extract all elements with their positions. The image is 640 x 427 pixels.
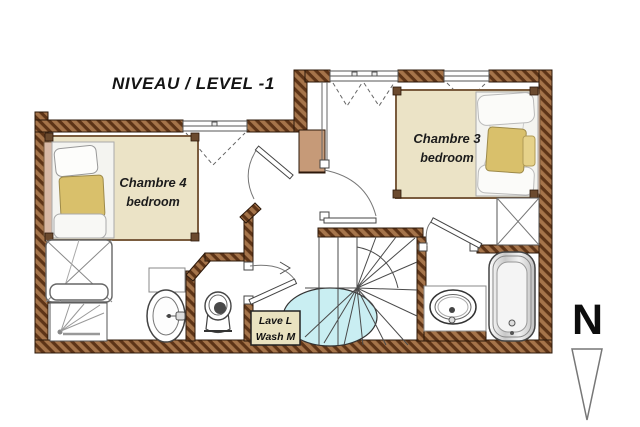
sofa-bunk-chambre4 [46,240,112,302]
vanity-right [424,286,486,331]
floor-plan-level-minus-1: NIVEAU / LEVEL -1 Chambre 4 bedroom Cham… [0,0,640,427]
laundry-label: Lave L Wash M [252,313,299,346]
tub-drain [509,320,515,326]
laundry-label-line1: Lave L [252,313,299,329]
washbasin-left [147,268,185,342]
north-arrow-icon [572,349,602,420]
wall-vanity-base [424,330,486,341]
closet-chambre3 [497,198,539,245]
toilet-bowl-shadow [214,302,226,314]
wall-stair-top [318,228,423,237]
toilet-wc [204,292,232,333]
door-chambre4 [248,146,293,199]
faucet-icon [449,317,455,323]
window-chambre3-left [330,71,398,81]
page-title: NIVEAU / LEVEL -1 [112,74,275,94]
shower [50,303,107,341]
window-hall [183,121,247,131]
laundry-label-line2: Wash M [252,329,299,345]
room-subtitle-chambre3: bedroom [392,149,502,167]
wall-top-right-b [398,70,444,82]
floor-plan-drawing [0,0,640,427]
door-chambre3 [320,82,376,223]
wall-right [539,70,552,352]
bathtub [489,252,535,341]
wall-wc-top [205,253,248,261]
room-label-chambre3: Chambre 3 bedroom [392,130,502,167]
drain-icon [449,307,455,313]
room-name-chambre3: Chambre 3 [392,130,502,149]
wall-wc-left [186,271,195,341]
faucet-icon [167,314,171,318]
door-bathroom [419,218,482,251]
wall-top-right-a [305,70,330,82]
pillow-white [54,145,99,177]
tub-overflow [510,331,514,335]
room-name-chambre4: Chambre 4 [98,174,208,193]
window-chambre3-right [444,71,489,81]
stair-direction-arrow-icon [280,262,290,274]
wall-hall-upper [244,216,253,267]
wall-top-left-a [35,120,183,132]
stair-nosing-arc [357,247,398,288]
room-label-chambre4: Chambre 4 bedroom [98,174,208,211]
north-letter: N [566,296,608,345]
room-subtitle-chambre4: bedroom [98,193,208,211]
